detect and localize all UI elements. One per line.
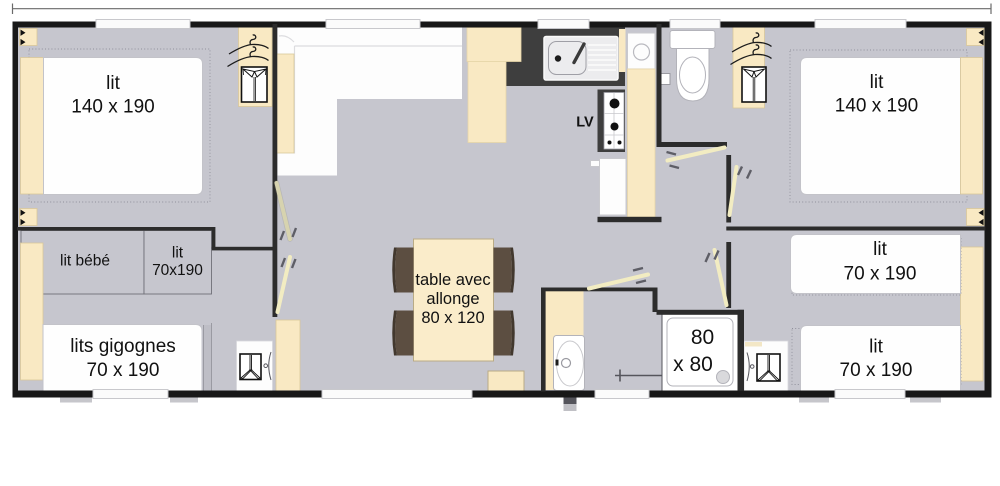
svg-text:lit bébé: lit bébé (60, 253, 110, 270)
svg-text:80 x 120: 80 x 120 (421, 309, 484, 327)
svg-text:lit: lit (873, 239, 887, 260)
svg-text:80: 80 (691, 326, 714, 349)
svg-text:lit: lit (106, 73, 120, 94)
svg-text:lit: lit (869, 337, 883, 358)
svg-text:70 x 190: 70 x 190 (87, 360, 160, 381)
svg-text:x 80: x 80 (673, 353, 713, 376)
svg-text:lit: lit (172, 245, 184, 262)
svg-text:140 x 190: 140 x 190 (835, 96, 918, 117)
svg-text:140 x 190: 140 x 190 (71, 97, 154, 118)
svg-text:lits gigognes: lits gigognes (70, 336, 176, 357)
svg-text:70 x 190: 70 x 190 (844, 264, 917, 285)
svg-text:LV: LV (576, 115, 594, 131)
svg-text:70x190: 70x190 (152, 262, 203, 279)
svg-text:lit: lit (870, 72, 884, 93)
svg-text:table avec: table avec (415, 271, 490, 289)
svg-text:70 x 190: 70 x 190 (840, 360, 913, 381)
svg-text:allonge: allonge (426, 290, 479, 308)
